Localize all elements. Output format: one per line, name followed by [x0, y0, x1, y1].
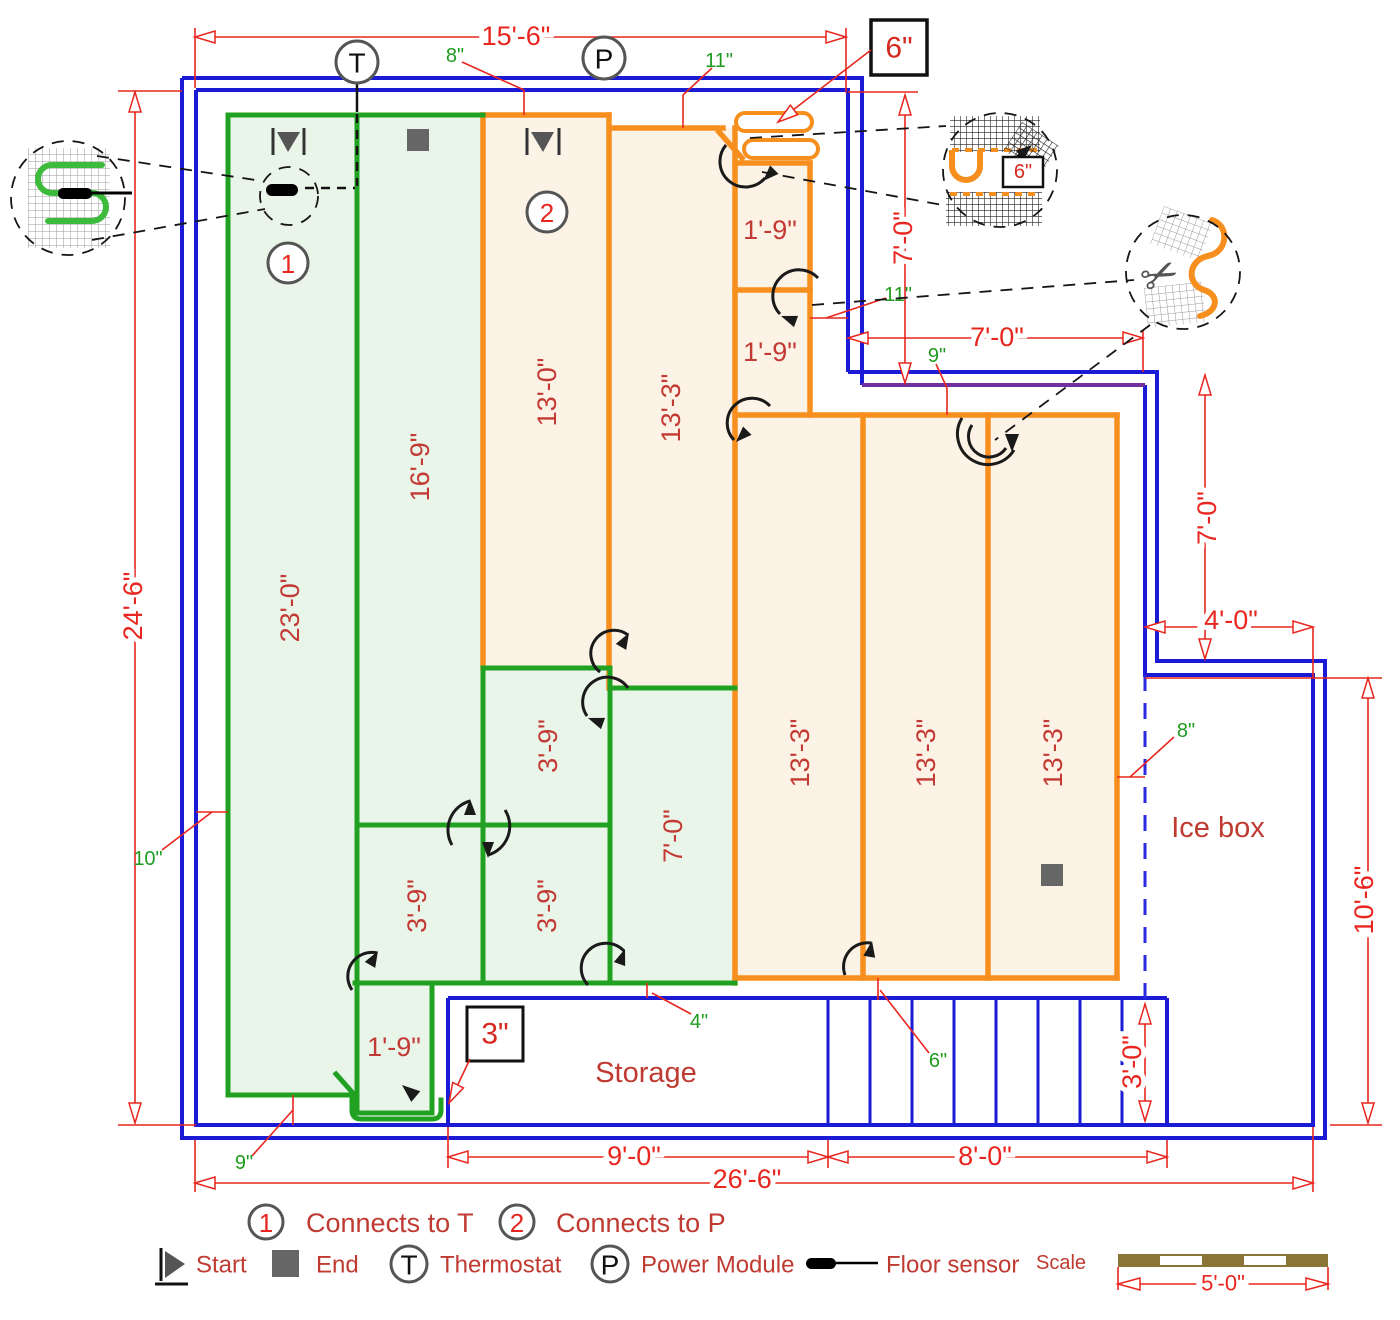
dim-notch-height: 7'-0" — [888, 211, 918, 265]
legend: 1 Connects to T 2 Connects to P Start En… — [155, 1205, 1328, 1296]
legend-num-2: 2 — [510, 1208, 524, 1238]
legend-thermostat-label: Thermostat — [440, 1252, 562, 1279]
note-left-10: 10" — [133, 848, 162, 870]
note-top-8: 8" — [446, 45, 464, 67]
label-mat-1-9-b: 1'-9" — [743, 337, 797, 367]
power-letter: P — [595, 44, 614, 75]
note-bottom-4: 4" — [690, 1011, 708, 1033]
folded-mat-strip-2 — [744, 140, 818, 158]
label-mat-3-9-top: 3'-9" — [533, 719, 563, 773]
legend-sensor-icon — [806, 1258, 878, 1269]
dim-right-step-height: 7'-0" — [1192, 491, 1222, 545]
scissors-detail: ✂ — [812, 206, 1240, 440]
scale-length: 5'-0" — [1201, 1271, 1245, 1296]
label-mat-1-9-green: 1'-9" — [367, 1032, 421, 1062]
note-bottom-9: 9" — [235, 1152, 253, 1174]
label-mat-13-0: 13'-0" — [532, 358, 562, 427]
marker-2: 2 — [540, 198, 554, 228]
label-mat-13-3-top: 13'-3" — [656, 374, 686, 443]
legend-label-2: Connects to P — [556, 1208, 726, 1238]
label-mat-13-3-b: 13'-3" — [911, 719, 941, 788]
legend-end-label: End — [316, 1252, 359, 1279]
label-icebox: Ice box — [1171, 812, 1265, 844]
stair-treads — [828, 1000, 1122, 1125]
folded-mat-strip-1 — [736, 113, 812, 131]
mat-fills — [228, 115, 1117, 1113]
legend-num-1: 1 — [259, 1208, 273, 1238]
label-mat-7-0: 7'-0" — [658, 809, 688, 863]
scale-label: Scale — [1036, 1252, 1086, 1274]
legend-start-icon — [155, 1248, 188, 1284]
dim-stairs-height: 3'-0" — [1117, 1035, 1147, 1089]
dim-overall-width: 26'-6" — [713, 1164, 782, 1194]
legend-t-letter: T — [400, 1250, 417, 1281]
legend-p-letter: P — [601, 1250, 620, 1281]
label-mat-13-3-c: 13'-3" — [1038, 719, 1068, 788]
note-stairs-6: 6" — [929, 1050, 947, 1072]
label-mat-3-9-mid: 3'-9" — [532, 879, 562, 933]
label-mat-23-0: 23'-0" — [275, 574, 305, 643]
plan-drawing: 15'-6" 24'-6" 7'-0" 7'-0" 7'-0" 4'-0" — [0, 0, 1400, 1315]
label-mat-13-3-a: 13'-3" — [785, 719, 815, 788]
end-marker-green — [407, 129, 429, 151]
end-marker-orange — [1041, 864, 1063, 886]
label-mat-16-9: 16'-9" — [405, 433, 435, 502]
callout-edge-gap: 3" — [481, 1018, 508, 1051]
dim-icebox-top: 4'-0" — [1204, 605, 1258, 635]
note-right-11: 11" — [884, 284, 912, 306]
label-mat-1-9-a: 1'-9" — [743, 215, 797, 245]
dim-left-height: 24'-6" — [118, 572, 148, 641]
dim-stairs-width: 8'-0" — [958, 1141, 1012, 1171]
dim-storage-width: 9'-0" — [607, 1141, 661, 1171]
dim-top-width: 15'-6" — [482, 21, 551, 51]
detail-spacing-label: 6" — [1014, 161, 1032, 183]
label-mat-3-9-left: 3'-9" — [402, 879, 432, 933]
callout-cable-spacing: 6" — [885, 32, 912, 65]
floor-heating-plan: 15'-6" 24'-6" 7'-0" 7'-0" 7'-0" 4'-0" — [0, 0, 1400, 1315]
dim-icebox-height: 10'-6" — [1349, 866, 1379, 935]
legend-sensor-label: Floor sensor — [886, 1252, 1019, 1279]
note-top-11: 11" — [705, 50, 733, 72]
note-right-9: 9" — [928, 345, 946, 367]
thermostat-letter: T — [348, 48, 365, 79]
scale-bar — [1118, 1254, 1328, 1267]
legend-label-1: Connects to T — [306, 1208, 474, 1238]
legend-end-icon — [272, 1250, 299, 1277]
dim-notch-width: 7'-0" — [970, 322, 1024, 352]
floor-sensor-symbol — [266, 184, 298, 196]
note-icebox-8: 8" — [1177, 720, 1195, 742]
marker-1: 1 — [281, 249, 295, 279]
legend-power-label: Power Module — [641, 1252, 794, 1279]
legend-start-label: Start — [196, 1252, 247, 1279]
label-storage: Storage — [595, 1057, 697, 1089]
